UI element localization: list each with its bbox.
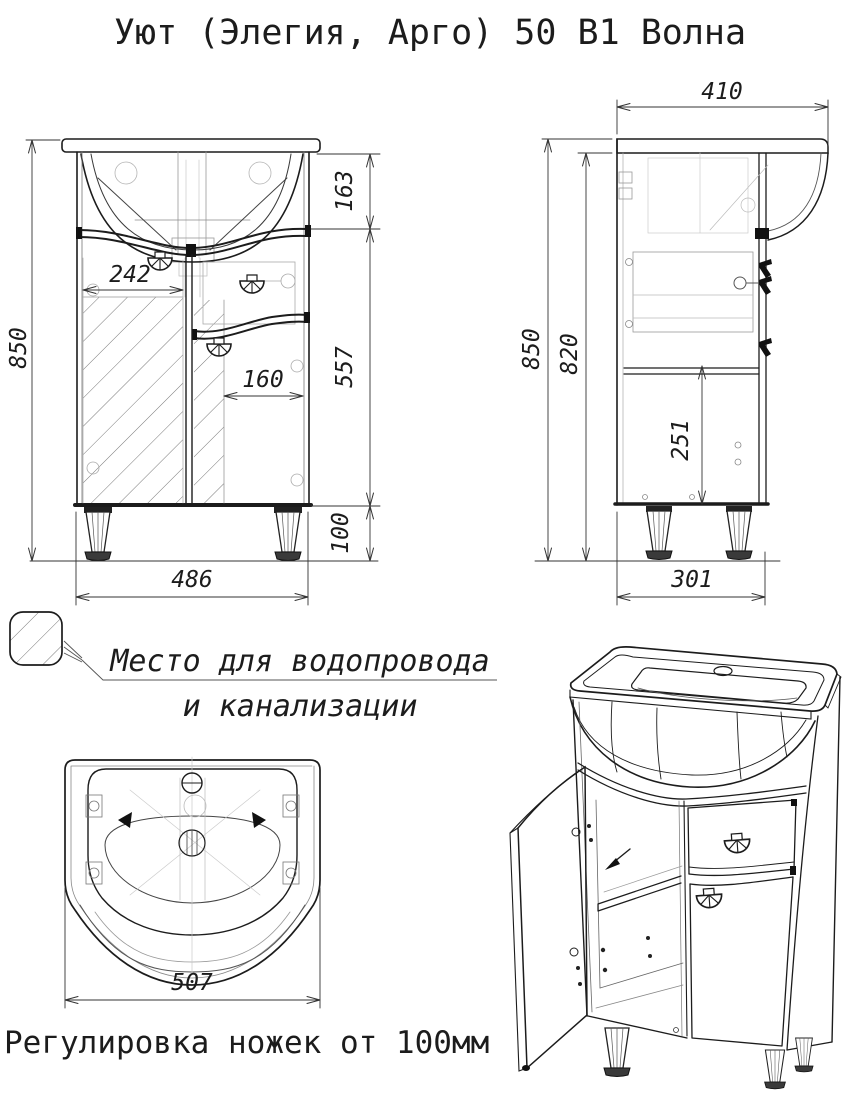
dim-side-bottom-depth: 301 — [670, 567, 713, 593]
dim-front-left-door-width: 242 — [109, 262, 151, 288]
footnote: Регулировка ножек от 100мм — [4, 1025, 489, 1061]
technical-drawing-page: Уют (Элегия, Арго) 50 В1 Волна — [0, 0, 857, 1107]
dim-side-depth: 410 — [701, 79, 743, 105]
page-title: Уют (Элегия, Арго) 50 В1 Волна — [114, 13, 746, 53]
dim-front-legs-height: 100 — [328, 512, 354, 554]
front-plumbing-hatch — [83, 297, 224, 503]
dim-front-cabinet-height: 557 — [332, 346, 358, 388]
side-countertop — [617, 139, 828, 153]
legend-note-line1: Место для водопровода — [109, 644, 489, 679]
dim-front-overall-width: 486 — [171, 567, 213, 593]
technical-drawing: Уют (Элегия, Арго) 50 В1 Волна — [0, 0, 857, 1107]
dim-top-sink-width: 507 — [171, 970, 213, 996]
dim-front-right-door-width: 160 — [242, 367, 284, 393]
front-countertop — [62, 139, 320, 152]
dim-side-inner-height: 251 — [668, 419, 694, 461]
legend-note-line2: и канализации — [183, 689, 418, 724]
dim-front-overall-height: 850 — [6, 327, 32, 369]
dim-side-overall-height: 850 — [519, 328, 545, 370]
dim-front-sink-height: 163 — [332, 170, 358, 212]
dim-side-cabinet-height: 820 — [557, 333, 583, 375]
wall-bracket-icon — [755, 228, 769, 239]
hatch-swatch-icon — [10, 612, 62, 665]
